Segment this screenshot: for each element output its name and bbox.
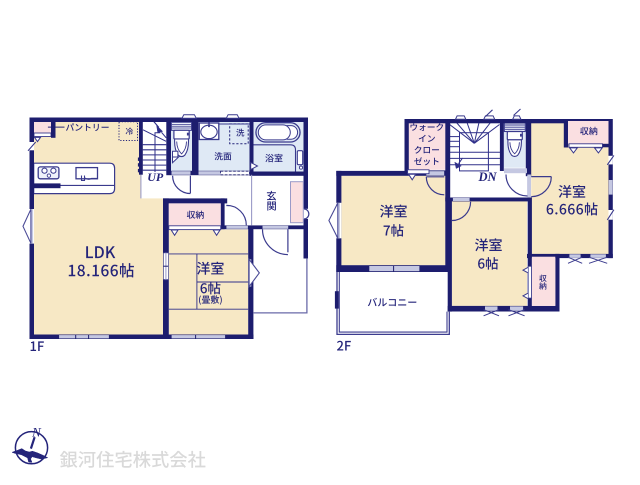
svg-text:DN: DN — [477, 170, 497, 184]
svg-text:N: N — [31, 425, 42, 440]
svg-text:UP: UP — [147, 170, 164, 184]
